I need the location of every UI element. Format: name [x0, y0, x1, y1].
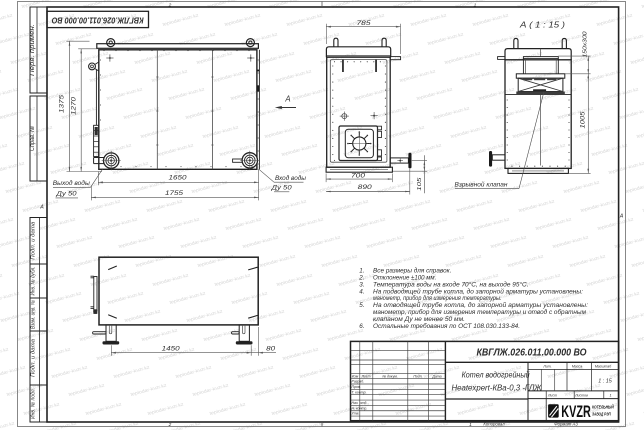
svg-text:KVZR: KVZR — [561, 402, 591, 421]
svg-text:А: А — [39, 205, 44, 211]
svg-text:Н. контр.: Н. контр. — [352, 406, 368, 410]
svg-text:Подп.: Подп. — [413, 374, 422, 378]
svg-text:1: 1 — [469, 422, 472, 428]
svg-text:1650: 1650 — [169, 175, 188, 182]
svg-text:Формат А3: Формат А3 — [554, 421, 578, 426]
svg-text:Лист: Лист — [547, 394, 557, 398]
svg-text:Листов: Листов — [574, 394, 588, 398]
svg-text:Масса: Масса — [572, 364, 582, 368]
svg-text:манометр, прибор для измерения: манометр, прибор для измерения температу… — [373, 308, 587, 316]
svg-text:105: 105 — [417, 177, 423, 191]
svg-text:1375: 1375 — [59, 94, 66, 113]
svg-text:На отводящей трубе котла, до з: На отводящей трубе котла, до запорной ар… — [373, 301, 588, 309]
svg-text:890: 890 — [358, 184, 373, 191]
svg-text:Все размеры для справок.: Все размеры для справок. — [373, 267, 452, 275]
svg-text:А: А — [284, 95, 290, 104]
svg-text:2: 2 — [168, 2, 172, 8]
svg-text:6.: 6. — [359, 323, 364, 330]
svg-text:Взам. инв. №: Взам. инв. № — [31, 300, 37, 329]
svg-text:1005: 1005 — [581, 111, 587, 129]
svg-text:Температура воды на входе 70°С: Температура воды на входе 70°С, на выход… — [373, 280, 529, 288]
svg-text:80: 80 — [266, 345, 276, 352]
svg-text:1 : 15: 1 : 15 — [598, 378, 612, 384]
svg-text:785: 785 — [357, 20, 372, 27]
svg-text:Инв. № дубл.: Инв. № дубл. — [31, 267, 37, 296]
svg-text:КОТЕЛЬНЫЙ: КОТЕЛЬНЫЙ — [592, 402, 614, 409]
svg-text:Т. контр.: Т. контр. — [352, 390, 367, 394]
svg-text:Дата: Дата — [431, 374, 441, 378]
svg-text:Справ. №: Справ. № — [29, 126, 36, 151]
svg-text:Масштаб: Масштаб — [595, 364, 612, 368]
svg-text:Разраб.: Разраб. — [352, 380, 365, 384]
svg-text:1.: 1. — [359, 268, 364, 275]
svg-text:2: 2 — [168, 422, 172, 428]
svg-text:5.: 5. — [359, 302, 364, 309]
svg-text:Утв.: Утв. — [352, 412, 360, 416]
svg-text:Лит.: Лит. — [542, 364, 551, 368]
svg-text:Взрывной клапан: Взрывной клапан — [455, 181, 509, 188]
svg-text:Изм: Изм — [352, 374, 359, 378]
svg-text:А: А — [619, 214, 624, 220]
svg-text:700: 700 — [351, 172, 366, 179]
svg-text:1: 1 — [474, 2, 477, 8]
svg-text:4.: 4. — [359, 288, 364, 295]
svg-text:1450: 1450 — [162, 345, 181, 352]
svg-text:Копировал: Копировал — [483, 421, 505, 426]
svg-text:Пров.: Пров. — [352, 385, 361, 389]
svg-text:Перв. примен.: Перв. примен. — [29, 24, 36, 76]
svg-text:ЗАВОД РЭП: ЗАВОД РЭП — [592, 412, 611, 417]
svg-text:Ду 50: Ду 50 — [55, 192, 77, 198]
svg-text:манометр, прибор для измерения: манометр, прибор для измерения температу… — [373, 294, 502, 302]
svg-text:КВГЛЖ.026.011.00.000 ВО: КВГЛЖ.026.011.00.000 ВО — [52, 15, 144, 24]
svg-text:А ( 1 : 15 ): А ( 1 : 15 ) — [519, 21, 566, 30]
svg-text:Нач. отд.: Нач. отд. — [352, 401, 368, 405]
svg-text:1270: 1270 — [71, 96, 78, 115]
svg-text:Вход воды: Вход воды — [275, 176, 307, 182]
svg-text:1755: 1755 — [165, 190, 184, 197]
svg-text:Подп. и дата: Подп. и дата — [31, 338, 37, 377]
svg-text:Ду 50: Ду 50 — [270, 185, 292, 191]
svg-text:№ докум.: № докум. — [382, 374, 397, 378]
svg-text:Выход воды: Выход воды — [53, 181, 91, 187]
svg-text:150х300: 150х300 — [582, 31, 588, 58]
svg-text:Лист: Лист — [360, 374, 370, 378]
svg-text:На подводящей трубе котла, до: На подводящей трубе котла, до запорной а… — [373, 287, 583, 295]
svg-text:КВГЛЖ.026.011.00.000 ВО: КВГЛЖ.026.011.00.000 ВО — [477, 348, 587, 359]
svg-text:Подп. и дата: Подп. и дата — [31, 221, 37, 260]
svg-text:Котел водогрейный: Котел водогрейный — [462, 370, 530, 379]
svg-text:Инв. № подл.: Инв. № подл. — [31, 388, 37, 419]
svg-text:1: 1 — [609, 394, 611, 398]
svg-text:Остальные требования по ОСТ 10: Остальные требования по ОСТ 108.030.133-… — [373, 322, 520, 330]
